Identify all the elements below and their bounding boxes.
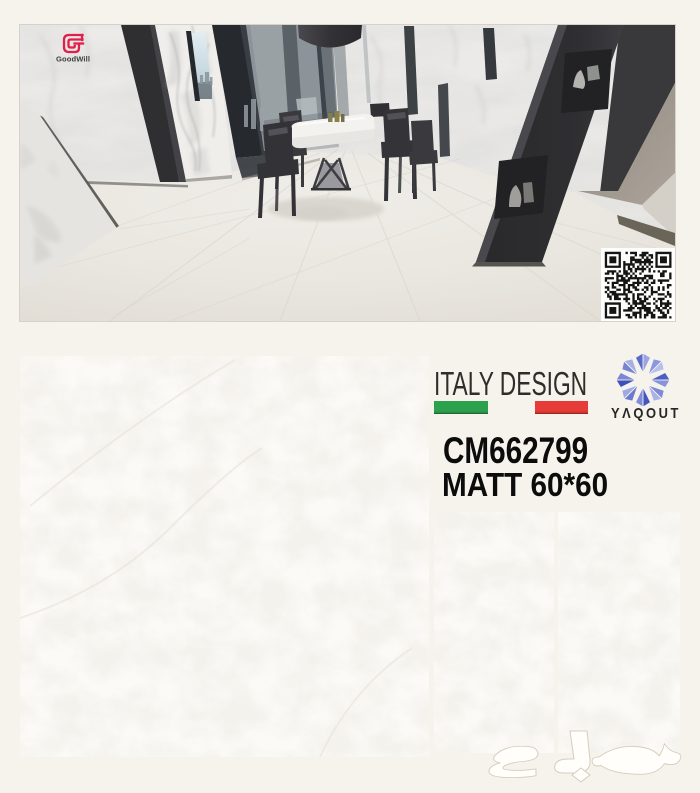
svg-text:GoodWill: GoodWill bbox=[56, 55, 90, 64]
